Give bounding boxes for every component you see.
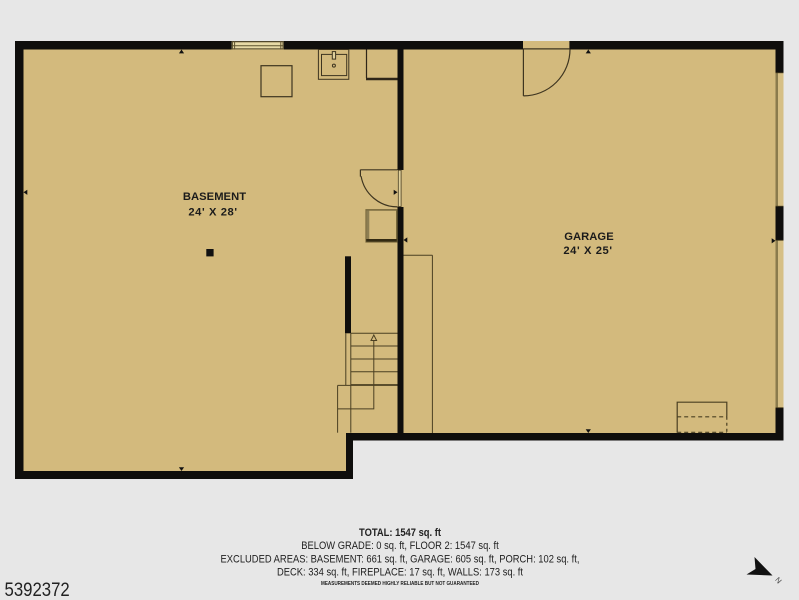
svg-text:5392372: 5392372	[5, 579, 70, 600]
svg-text:MEASUREMENTS DEEMED HIGHLY REL: MEASUREMENTS DEEMED HIGHLY RELIABLE BUT …	[321, 581, 479, 587]
svg-text:BELOW GRADE: 0 sq. ft, FLOOR 2: BELOW GRADE: 0 sq. ft, FLOOR 2: 1547 sq.…	[301, 541, 499, 553]
svg-text:BASEMENT: BASEMENT	[183, 191, 246, 203]
svg-text:TOTAL: 1547 sq. ft: TOTAL: 1547 sq. ft	[359, 527, 442, 539]
svg-text:DECK: 334 sq. ft, FIREPLACE: 1: DECK: 334 sq. ft, FIREPLACE: 17 sq. ft, …	[277, 567, 523, 579]
svg-text:GARAGE: GARAGE	[564, 231, 614, 243]
svg-text:EXCLUDED AREAS: BASEMENT: 661: EXCLUDED AREAS: BASEMENT: 661 sq. ft, GA…	[221, 554, 580, 566]
svg-text:24' X 28': 24' X 28'	[188, 206, 237, 218]
svg-text:24' X 25': 24' X 25'	[563, 245, 612, 257]
